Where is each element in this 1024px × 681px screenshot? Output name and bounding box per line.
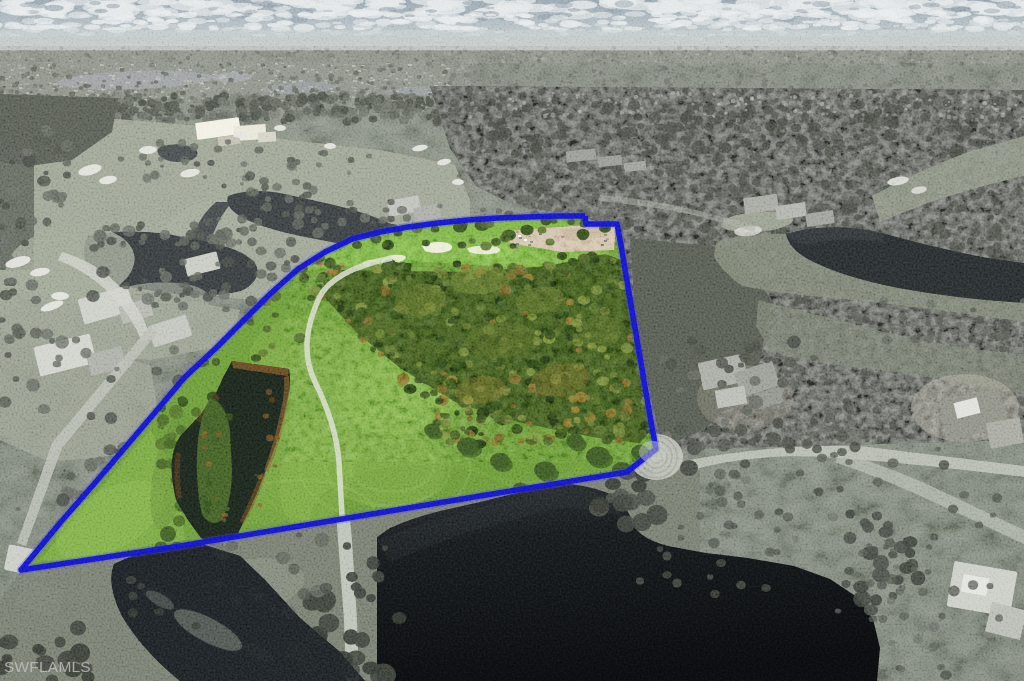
svg-text:SWFLAMLS: SWFLAMLS (4, 658, 91, 675)
